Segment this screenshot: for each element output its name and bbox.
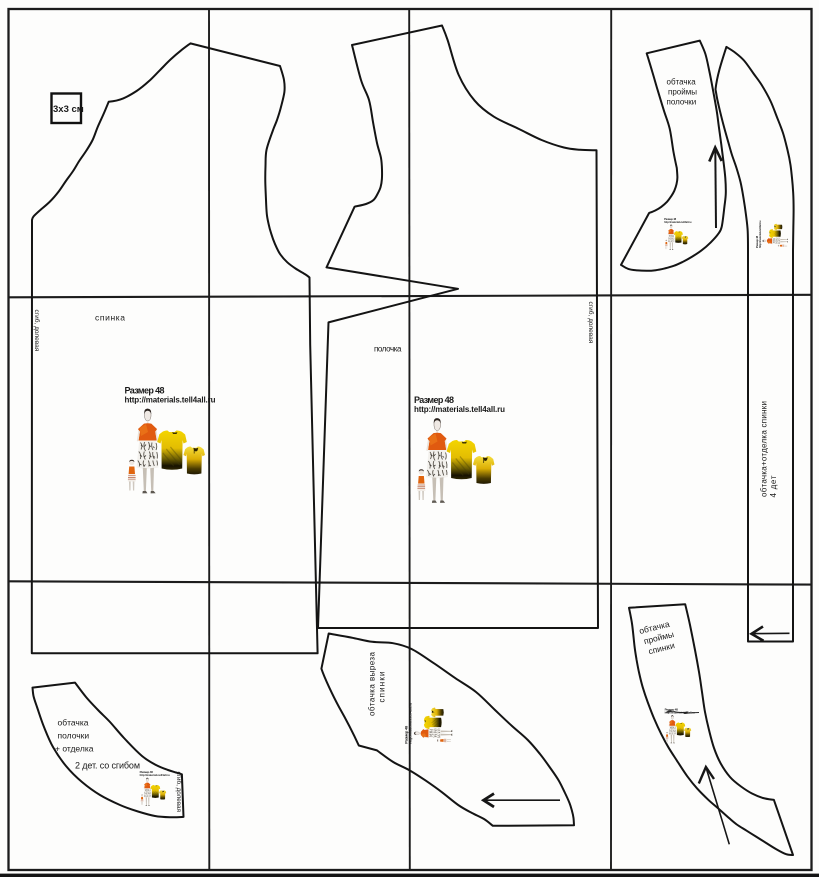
svg-text:обтачка: обтачка xyxy=(58,718,89,728)
svg-text:полочка: полочка xyxy=(374,345,402,354)
svg-text:обтачка: обтачка xyxy=(667,78,697,87)
svg-text:полочки: полочки xyxy=(58,731,90,741)
svg-text:+ отделка: + отделка xyxy=(55,744,94,754)
svg-text:спинки: спинки xyxy=(378,672,387,703)
svg-text:2 дет. со сгибом: 2 дет. со сгибом xyxy=(75,761,140,771)
svg-text:спинка: спинка xyxy=(95,313,125,323)
svg-text:сгиб, долевая: сгиб, долевая xyxy=(587,302,595,344)
svg-text:проймы: проймы xyxy=(668,88,697,97)
svg-text:полочки: полочки xyxy=(667,98,697,107)
svg-text:обтачка выреза: обтачка выреза xyxy=(368,651,377,716)
svg-text:сгиб, долевая: сгиб, долевая xyxy=(33,310,41,352)
svg-text:сгиб, долевая: сгиб, долевая xyxy=(175,772,183,812)
svg-text:3x3 см: 3x3 см xyxy=(53,104,84,115)
svg-text:4 дет: 4 дет xyxy=(769,475,778,497)
svg-text:обтачка+отделка спинки: обтачка+отделка спинки xyxy=(760,401,769,497)
